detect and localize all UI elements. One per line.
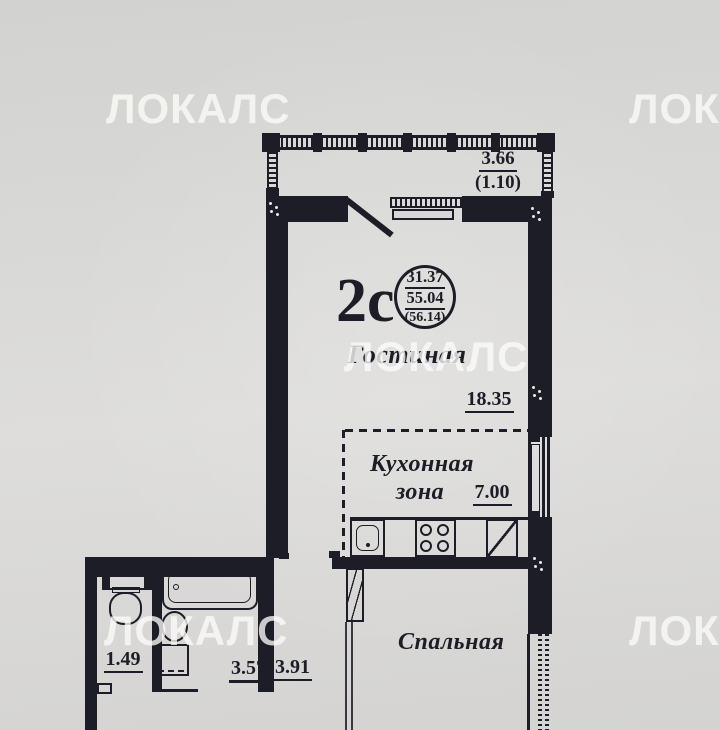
bathroom-area-value: 3.57	[229, 658, 268, 683]
kitchen-sink	[350, 519, 385, 557]
balcony-area-value: (1.10)	[475, 172, 521, 193]
balcony-railing-post	[447, 133, 456, 152]
kitchen-zone-area-value: 7.00	[473, 482, 512, 506]
floorplan-scan: 3.66 (1.10)	[0, 0, 720, 730]
living-room-area-value: 18.35	[465, 389, 514, 413]
wall-bedroom-top	[332, 557, 552, 569]
balcony-railing-post	[313, 133, 322, 152]
bathroom-area: 3.57	[229, 658, 267, 683]
balcony-railing-post	[358, 133, 367, 152]
kitchen-zone-area: 7.00	[470, 482, 514, 506]
wall-bathroom-left	[85, 557, 97, 730]
unit-type-value: 2с	[336, 267, 395, 335]
bedroom-window-glazing	[538, 634, 542, 730]
balcony-railing-post	[403, 133, 412, 152]
balcony-dimension: 3.66	[474, 149, 522, 172]
kitchen-sink-drain	[366, 543, 370, 547]
wall-end-cap	[329, 551, 340, 558]
kitchen-window-tick	[528, 437, 540, 442]
hallway-bedroom-partition	[345, 622, 353, 730]
living-room-area: 18.35	[464, 389, 514, 413]
panel-joint-mark	[269, 202, 272, 205]
wc-sink-cap	[144, 573, 150, 588]
brand-watermark: ЛОКАЛС	[104, 610, 288, 652]
brand-watermark: ЛОКАЛС	[629, 88, 720, 130]
bedroom-label: Спальная	[398, 628, 494, 656]
wall-left	[266, 196, 288, 558]
bathtub	[162, 566, 258, 610]
brand-watermark: ЛОКАЛС	[344, 336, 528, 378]
balcony-area: (1.10)	[470, 173, 526, 193]
bedroom-window-face	[527, 634, 530, 730]
fridge	[486, 519, 518, 558]
total-area-value: 55.04	[405, 289, 444, 310]
bathtub-drain	[173, 584, 179, 590]
living-room-window-sill	[392, 209, 454, 220]
living-area-value: 31.37	[405, 268, 444, 288]
living-room-window	[390, 197, 462, 208]
bedroom-name: Спальная	[398, 629, 504, 655]
kitchen-zone-dashed-boundary-v	[342, 430, 345, 557]
bedroom-window-glazing	[545, 634, 549, 730]
wall-end-cap	[279, 553, 289, 559]
kitchen-zone-label: Кухонная зона	[370, 450, 470, 507]
area-stamp-circle: 31.37 55.04 (56.14)	[394, 265, 456, 329]
kitchen-window-line	[547, 437, 550, 517]
balcony-railing-left	[267, 152, 278, 190]
wall-niche	[97, 683, 112, 694]
balcony-railing-right	[542, 152, 553, 196]
bedroom-door-leaf	[346, 568, 364, 622]
brand-watermark: ЛОКАЛС	[106, 88, 290, 130]
kitchen-zone-name: Кухонная зона	[370, 451, 474, 505]
kitchen-window-frame	[531, 444, 540, 512]
bathtub-inner	[168, 572, 251, 603]
bathroom-door-jamb-h	[152, 689, 198, 692]
kitchen-window-line	[542, 437, 545, 517]
balcony-corner-post	[262, 133, 280, 152]
kitchen-sink-basin	[356, 525, 379, 551]
unit-type-label: 2с	[336, 270, 395, 332]
panel-joint-mark	[533, 557, 536, 560]
stove-burner	[420, 524, 432, 536]
wc-sink-cap	[104, 573, 110, 588]
wall-right-mid	[528, 517, 552, 634]
balcony-corner-post	[537, 133, 555, 152]
hallway-area: 3.91	[273, 657, 311, 681]
balcony-door-leaf	[344, 197, 393, 237]
stove-burner	[437, 540, 449, 552]
panel-joint-mark	[532, 386, 535, 389]
hallway-area-value: 3.91	[273, 657, 312, 681]
washing-machine-detail	[158, 670, 184, 672]
panel-joint-mark	[531, 207, 534, 210]
stove	[415, 519, 456, 557]
stove-burner	[437, 524, 449, 536]
kitchen-zone-dashed-boundary-h	[345, 429, 529, 432]
stove-burner	[420, 540, 432, 552]
kitchen-window-tick	[528, 512, 540, 517]
balcony-length-value: 3.66	[479, 149, 516, 172]
wall-right-upper	[528, 196, 552, 437]
total-area-alt-value: (56.14)	[405, 310, 446, 326]
brand-watermark: ЛОКАЛС	[629, 610, 720, 652]
